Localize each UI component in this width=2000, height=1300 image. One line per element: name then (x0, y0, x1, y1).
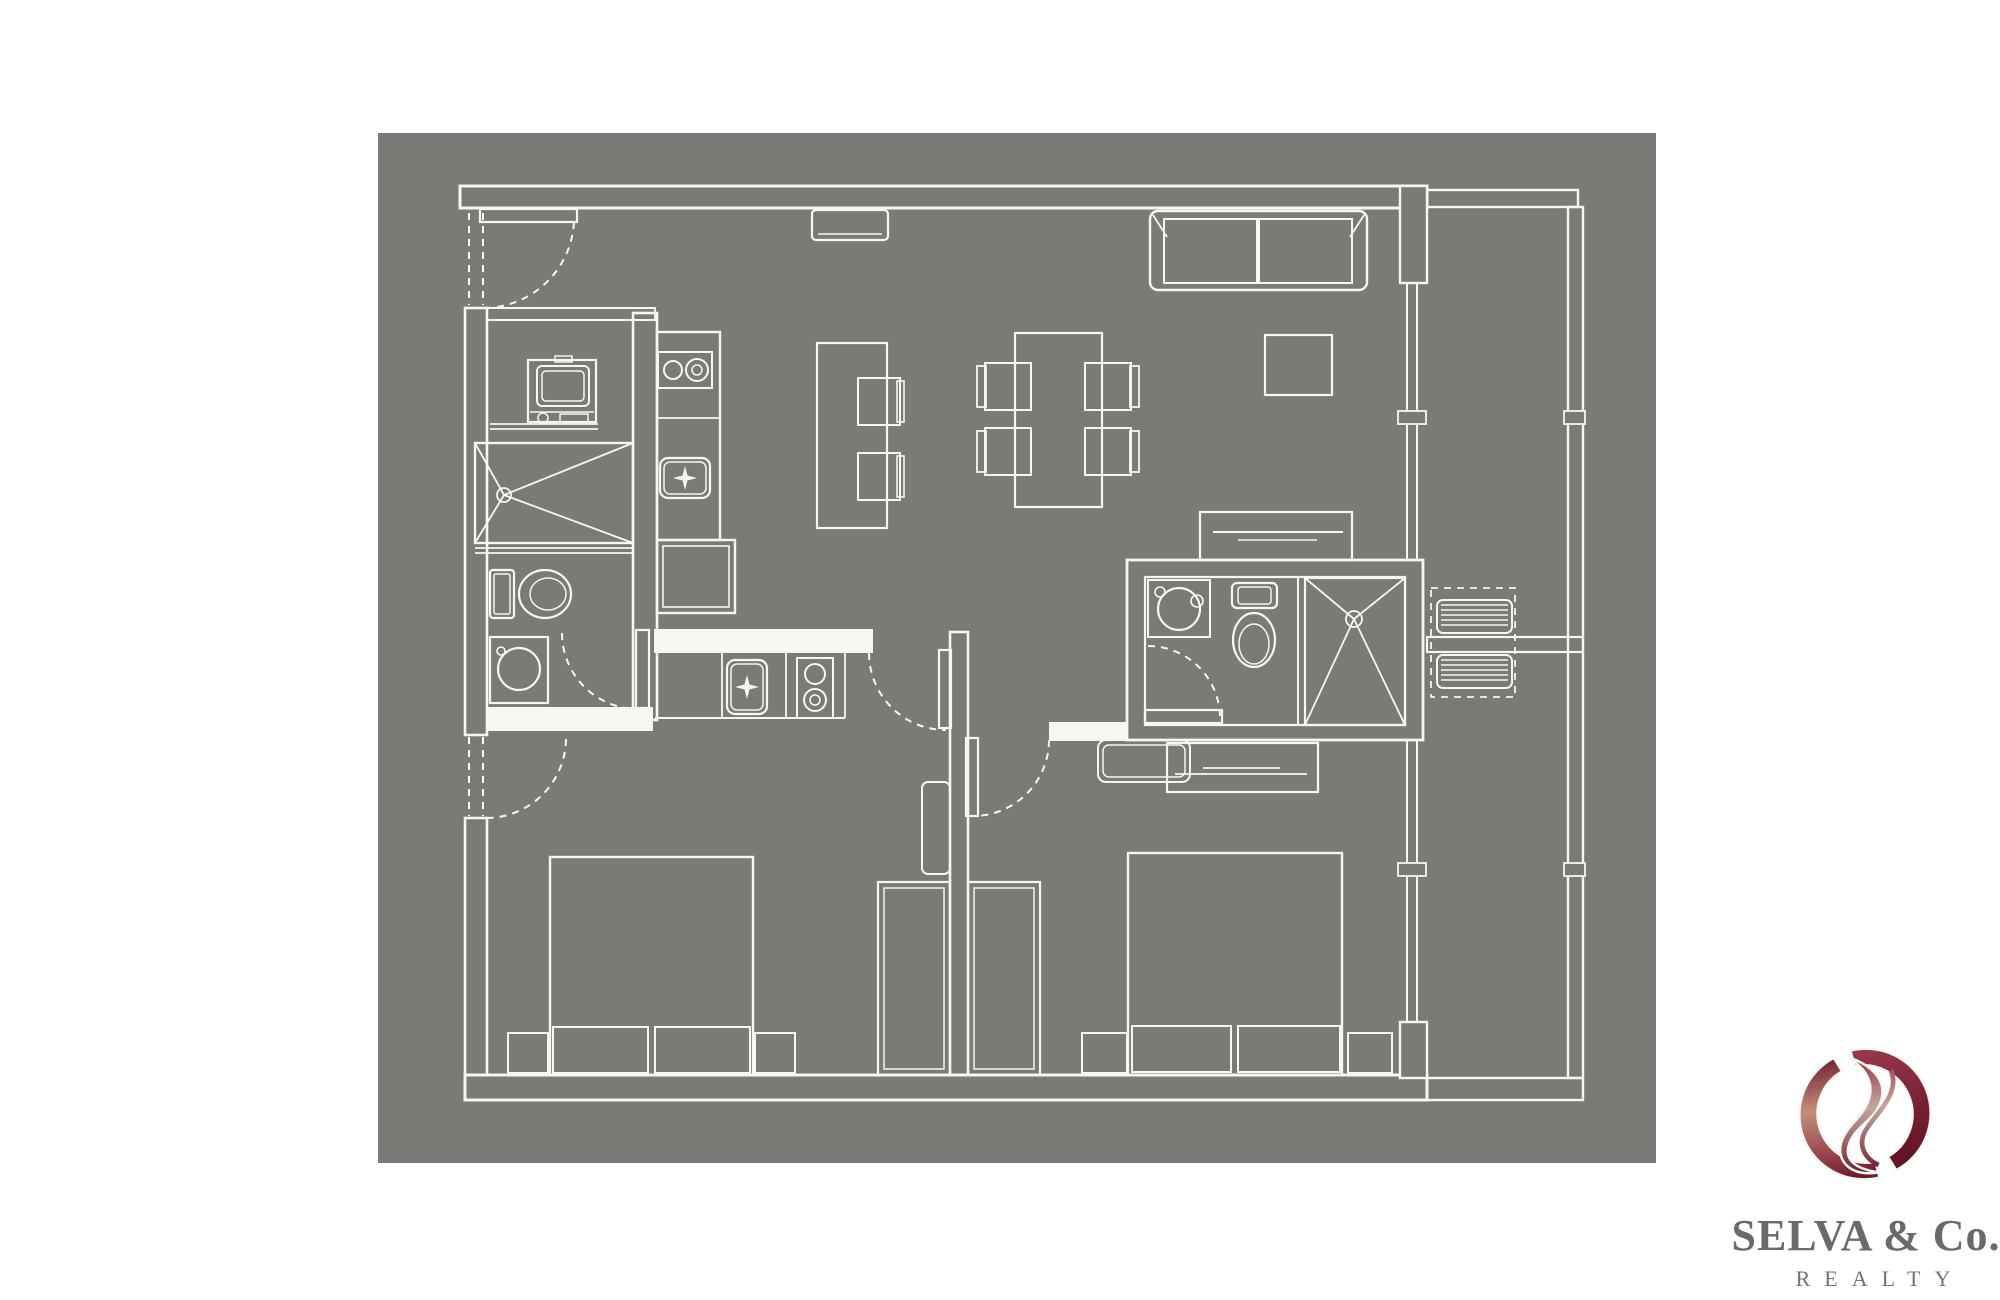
brand-logo-mark (1799, 1049, 1930, 1180)
column-northeast (1400, 186, 1427, 283)
column-southeast (1400, 1022, 1427, 1078)
brand-tagline: REALTY (1640, 1266, 2000, 1292)
glass-wall-bedroom2-mullion (1398, 863, 1426, 876)
brand-name: SELVA & Co. (1640, 1210, 2000, 1261)
wall-hall-bar (1050, 723, 1127, 740)
page: SELVA & Co. REALTY (0, 0, 2000, 1300)
balcony-rail-mullion-a (1564, 411, 1585, 424)
glass-wall-living-mullion (1398, 411, 1426, 424)
floorplan-group (378, 133, 1656, 1163)
wall-bath1-south (487, 708, 652, 730)
wall-counter-bar (655, 630, 872, 652)
plan-background (378, 133, 1656, 1163)
balcony-rail-mullion-b (1564, 863, 1585, 876)
floorplan-svg (0, 0, 2000, 1300)
